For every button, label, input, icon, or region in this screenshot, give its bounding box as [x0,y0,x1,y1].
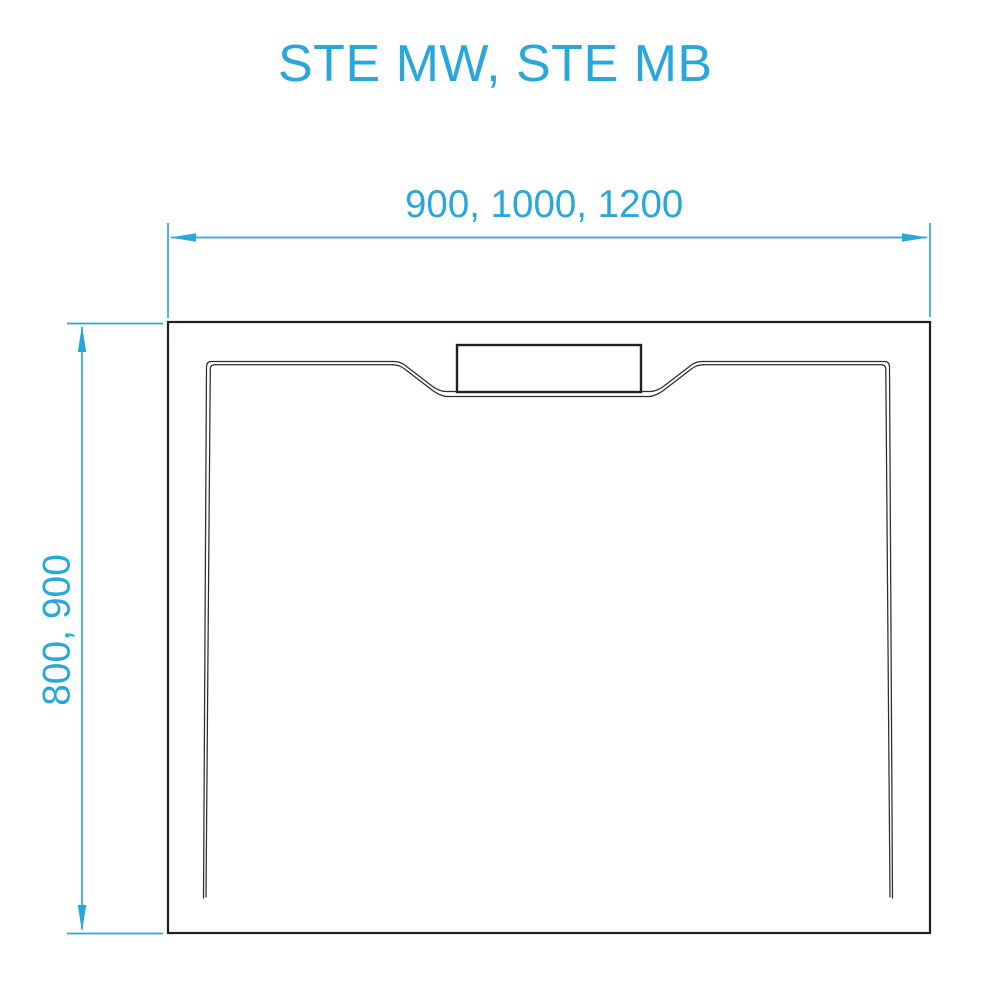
depth-dim-arrow-bottom [78,905,86,932]
technical-drawing [0,0,1000,1000]
depth-dimension-label: 800, 900 [38,554,77,706]
page-title: STE MW, STE MB [278,38,713,90]
tray-outline [168,322,930,933]
width-dim-arrow-right [902,233,928,242]
width-dim-arrow-left [170,233,196,242]
depth-dim-arrow-top [78,325,86,352]
width-dimension-label: 900, 1000, 1200 [405,186,683,225]
drain-cover [457,345,641,392]
